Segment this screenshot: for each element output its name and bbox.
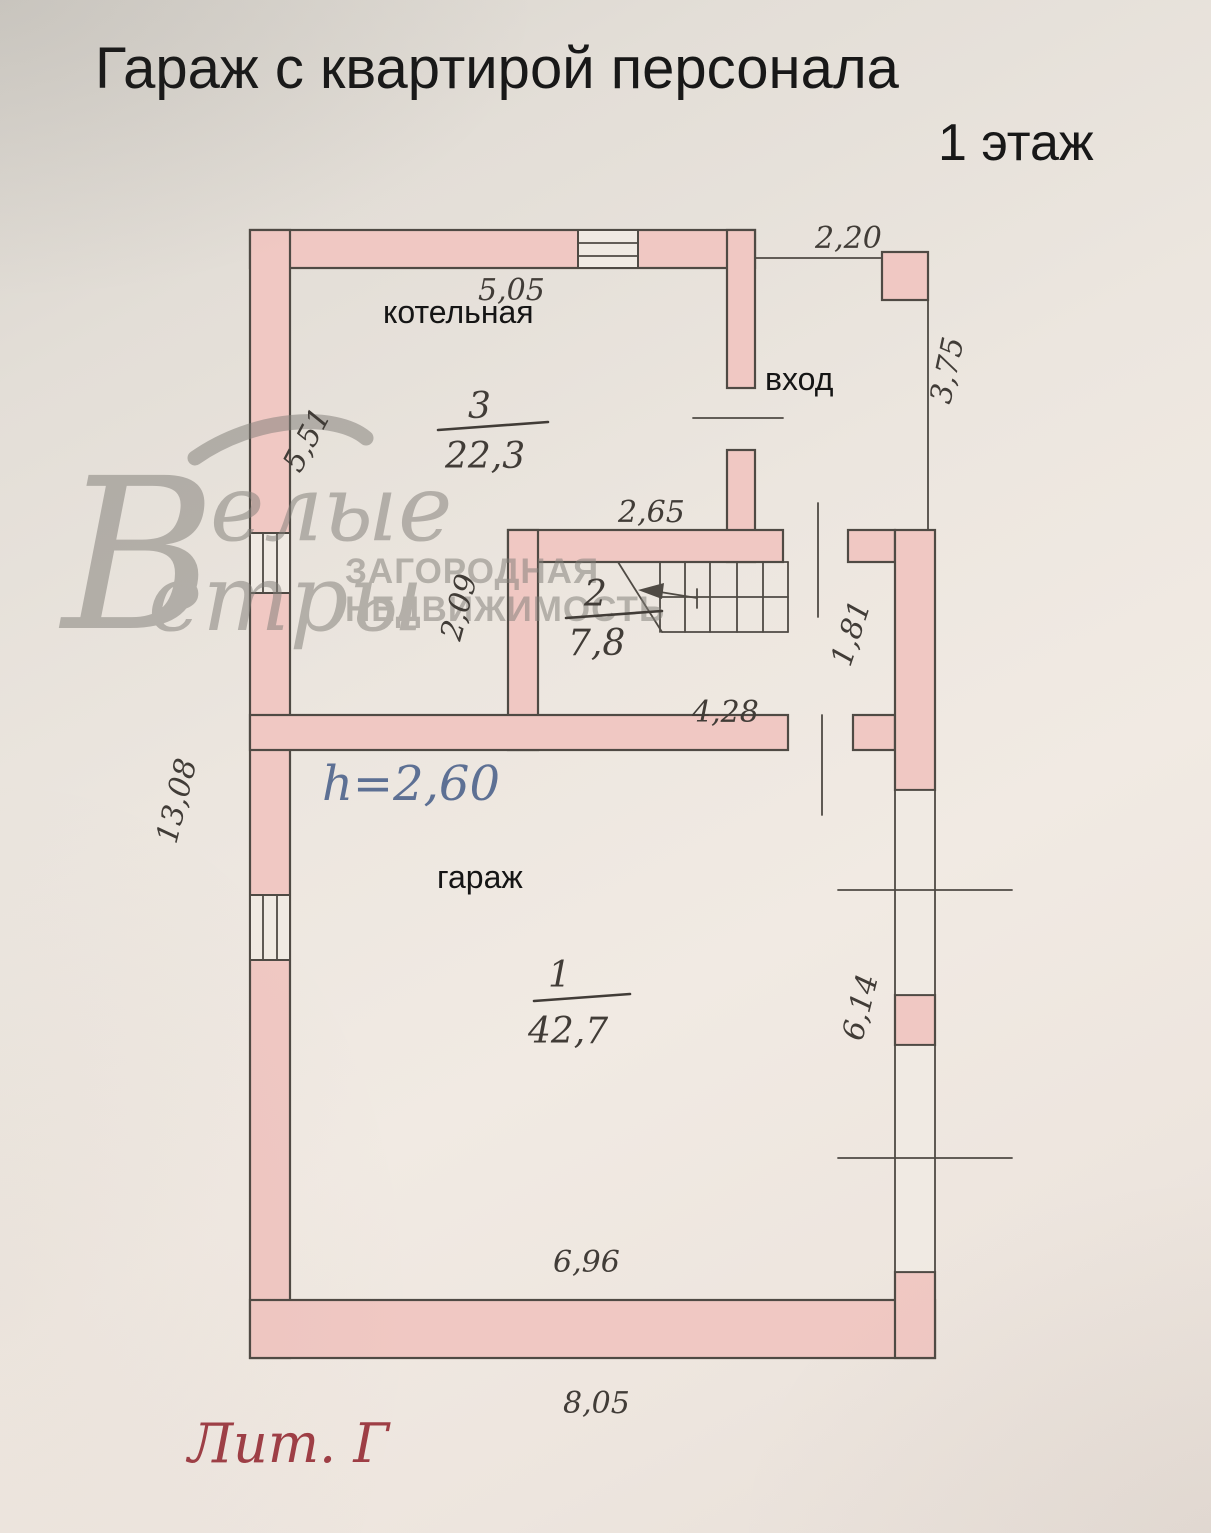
wall-bottom	[250, 1300, 935, 1358]
wall-top	[250, 230, 755, 268]
window-top	[578, 230, 638, 268]
floor-label: 1 этаж	[938, 114, 1094, 172]
dim-boiler-inner: 2,65	[617, 495, 685, 530]
wall-stairhall-top-right	[848, 530, 895, 562]
dim-stair-width: 4,28	[691, 695, 759, 730]
floor-plan: В елые етры ЗАГОРОДНАЯ НЕДВИЖИМОСТЬ Гара…	[0, 0, 1211, 1533]
porch-pillar	[882, 252, 928, 300]
room-number-stairhall: 2	[583, 574, 607, 615]
room-area-garage: 42,7	[527, 1011, 608, 1052]
dim-garage-bottom-inner: 6,96	[553, 1245, 620, 1280]
garage-gate-opening-upper	[895, 790, 935, 995]
page-title: Гараж с квартирой персонала	[95, 36, 900, 101]
dim-garage-right: 6,14	[836, 971, 886, 1044]
room-tag-garage: 1 42,7	[527, 955, 630, 1052]
room-label-entrance: вход	[765, 361, 834, 397]
wall-left	[250, 230, 290, 1358]
ceiling-height-note: h=2,60	[322, 756, 500, 812]
wall-boiler-porch-upper	[727, 230, 755, 388]
window-garage-left	[250, 895, 290, 960]
liter-mark: Лит. Г	[185, 1412, 391, 1475]
dim-stair-depth: 1,81	[824, 596, 878, 670]
scanned-floor-plan-page: В елые етры ЗАГОРОДНАЯ НЕДВИЖИМОСТЬ Гара…	[0, 0, 1211, 1533]
room-area-boiler: 22,3	[444, 436, 525, 477]
room-area-stairhall: 7,8	[568, 623, 625, 664]
dim-left-total: 13,08	[150, 755, 205, 847]
room-tag-boiler: 3 22,3	[438, 386, 548, 477]
room-label-garage: гараж	[437, 859, 523, 895]
dim-porch-depth: 3,75	[924, 334, 972, 407]
dim-porch-width: 2,20	[814, 221, 882, 256]
wall-right-upper	[895, 530, 935, 790]
dim-bottom-total: 8,05	[563, 1386, 630, 1421]
room-number-garage: 1	[548, 955, 571, 996]
wall-right-lower	[895, 1272, 935, 1358]
wall-garage-top-right	[853, 715, 895, 750]
room-number-boiler: 3	[468, 386, 491, 427]
wall-right-pier	[895, 995, 935, 1045]
dim-boiler-width: 5,05	[478, 273, 545, 308]
